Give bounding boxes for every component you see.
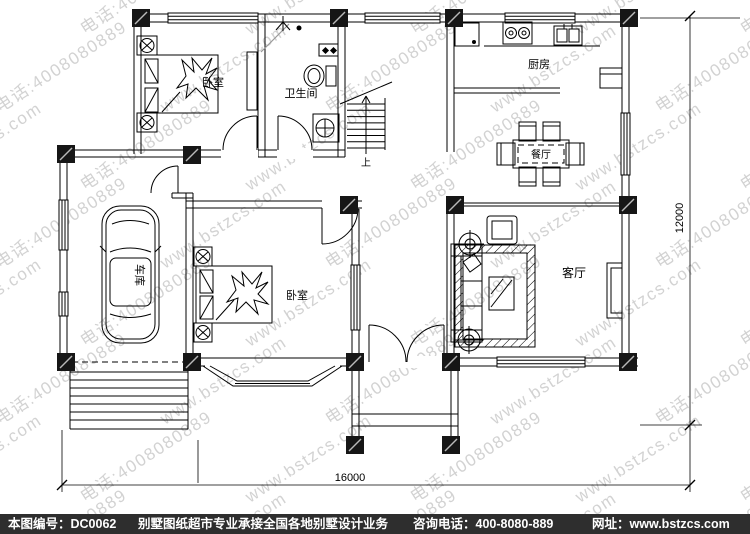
cabinet-icon bbox=[600, 68, 622, 88]
watermark-text: www.bstzcs.com bbox=[571, 99, 705, 195]
column bbox=[446, 196, 464, 214]
watermark-text: www.bstzcs.com bbox=[156, 177, 290, 273]
stove-icon bbox=[503, 22, 532, 44]
label-stairs-up: 上 bbox=[361, 157, 371, 169]
watermark-text: 电话:4008080889 bbox=[0, 17, 130, 116]
toilet-icon bbox=[304, 65, 336, 87]
watermark-text: www.bstzcs.com bbox=[241, 99, 375, 195]
column bbox=[346, 353, 364, 371]
footer-website: 网址：www.bstzcs.com bbox=[592, 514, 730, 534]
footer-phone: 咨询电话：400-8080-889 bbox=[413, 514, 553, 534]
floor-plan-sheet: www.bstzcs.com电话:4008080889www.bstzcs.co… bbox=[0, 0, 750, 534]
watermark-text: www.bstzcs.com bbox=[486, 177, 620, 273]
dim-height-label: 12000 bbox=[674, 203, 686, 234]
column bbox=[442, 353, 460, 371]
watermark-text: 电话:4008080889 bbox=[737, 251, 750, 350]
watermark-text: 电话:4008080889 bbox=[77, 407, 215, 506]
watermark-text: 电话:4008080889 bbox=[652, 173, 750, 272]
column bbox=[330, 9, 348, 27]
watermark-text: 电话:4008080889 bbox=[407, 407, 545, 506]
label-kitchen: 厨房 bbox=[528, 58, 550, 71]
watermark-text: 电话:4008080889 bbox=[737, 407, 750, 506]
drain-icon bbox=[297, 26, 302, 31]
column bbox=[445, 9, 463, 27]
watermark-text: 电话:4008080889 bbox=[737, 95, 750, 194]
chair-icon bbox=[519, 167, 536, 186]
sink-icon bbox=[319, 44, 338, 56]
label-bedroom1: 卧室 bbox=[202, 75, 224, 89]
room-labels: 卧室 卫生间 厨房 餐厅 客厅 卧室 车库 上 16000 12000 bbox=[133, 58, 686, 484]
column bbox=[346, 436, 364, 454]
column bbox=[619, 353, 637, 371]
garage-contents bbox=[70, 206, 188, 429]
watermark-text: 电话:4008080889 bbox=[652, 329, 750, 428]
bedroom1-door bbox=[223, 116, 257, 150]
column bbox=[183, 146, 201, 164]
garage-ramp-steps bbox=[70, 366, 188, 429]
column bbox=[442, 436, 460, 454]
nightstand-fan-icon bbox=[194, 323, 212, 342]
watermark-text: 电话:4008080889 bbox=[322, 329, 460, 428]
chair-icon bbox=[497, 143, 515, 165]
watermark-text: 电话:4008080889 bbox=[652, 17, 750, 116]
garage-door-jog bbox=[172, 193, 193, 198]
column bbox=[132, 9, 150, 27]
column bbox=[340, 196, 358, 214]
watermark-text: www.bstzcs.com bbox=[241, 411, 375, 507]
chair-icon bbox=[543, 167, 560, 186]
watermark-text: 电话:4008080889 bbox=[322, 173, 460, 272]
bed-icon bbox=[196, 266, 272, 323]
watermark-text: 电话:4008080889 bbox=[407, 95, 545, 194]
nightstand-fan-icon bbox=[137, 36, 157, 55]
watermark-text: www.bstzcs.com bbox=[156, 21, 290, 117]
chair-icon bbox=[543, 122, 560, 141]
label-dining: 餐厅 bbox=[531, 148, 551, 161]
column bbox=[619, 196, 637, 214]
label-living: 客厅 bbox=[562, 265, 586, 280]
watermark-text: 电话:4008080889 bbox=[652, 485, 750, 514]
garage-hall-door bbox=[151, 166, 178, 193]
watermark-text: www.bstzcs.com bbox=[0, 0, 45, 39]
column bbox=[57, 145, 75, 163]
watermark-text: www.bstzcs.com bbox=[571, 255, 705, 351]
footer-bar: 本图编号：DC0062 别墅图纸超市专业承接全国各地别墅设计业务 咨询电话：40… bbox=[0, 514, 750, 534]
watermark-text: 电话:4008080889 bbox=[737, 0, 750, 38]
label-garage: 车库 bbox=[133, 264, 147, 286]
watermark-text: 电话:4008080889 bbox=[0, 329, 130, 428]
column bbox=[620, 9, 638, 27]
label-bedroom2: 卧室 bbox=[286, 288, 308, 302]
watermark-text: 电话:4008080889 bbox=[407, 251, 545, 350]
column bbox=[183, 353, 201, 371]
column bbox=[57, 353, 75, 371]
label-bathroom: 卫生间 bbox=[285, 86, 318, 100]
watermark-text: 电话:4008080889 bbox=[322, 17, 460, 116]
dim-width-label: 16000 bbox=[335, 472, 366, 484]
footer-slogan: 别墅图纸超市专业承接全国各地别墅设计业务 bbox=[138, 514, 388, 534]
door-openings bbox=[184, 148, 445, 368]
floor-plan-drawing: www.bstzcs.com电话:4008080889www.bstzcs.co… bbox=[0, 0, 750, 514]
plan-number: 本图编号：DC0062 bbox=[8, 514, 116, 534]
watermark-layer: www.bstzcs.com电话:4008080889www.bstzcs.co… bbox=[0, 0, 750, 514]
